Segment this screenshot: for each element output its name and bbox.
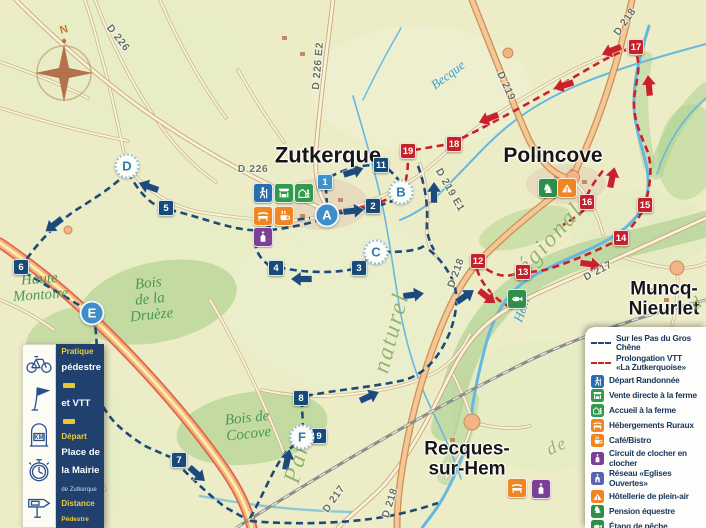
- hiker-icon: [591, 375, 604, 388]
- poi-fish-icon: [507, 289, 527, 309]
- waypoint-11: 11: [373, 157, 389, 173]
- fish-icon: [591, 520, 604, 528]
- poi-market-icon: [274, 183, 294, 203]
- legend-label: Pension équestre: [609, 507, 675, 516]
- yellow-badge: [63, 383, 75, 388]
- waypoint-17: 17: [628, 39, 644, 55]
- river-label-becque: Becque: [428, 57, 468, 93]
- info-value: et VTT: [61, 399, 90, 410]
- road-label-d-226-e2: D 226 E2: [310, 42, 326, 91]
- poi-tent-icon: [557, 178, 577, 198]
- legend-item-pension-equestre: ♞Pension équestre: [591, 505, 703, 518]
- road-label-d-219: D 219: [494, 70, 518, 103]
- svg-text:KM: KM: [35, 435, 44, 441]
- legend-label: Circuit de clocher en clocher: [609, 449, 703, 468]
- legend-item-accueil-a-la-ferme: Accueil à la ferme: [591, 404, 703, 417]
- legend-label: Départ Randonnée: [609, 376, 680, 385]
- legend-label: Hébergements Ruraux: [609, 421, 694, 430]
- letter-marker-f: F: [290, 425, 315, 450]
- church-icon: [591, 452, 604, 465]
- legend-label: Réseau «Eglises Ouvertes»: [609, 469, 703, 488]
- red-dash-swatch: [591, 362, 611, 364]
- waypoint-19: 19: [400, 143, 416, 159]
- letter-marker-e: E: [80, 301, 105, 326]
- legend-item-depart-randonnee: Départ Randonnée: [591, 374, 703, 387]
- poi-church-icon: [531, 479, 551, 499]
- cup-icon: [591, 434, 604, 447]
- road-label-d-218: D 218: [445, 257, 467, 290]
- place-label-bois-de-la-drueze: Boisde laDruèze: [126, 274, 174, 326]
- road-label-d-218: D 218: [380, 487, 401, 520]
- poi-cup-icon: [274, 206, 294, 226]
- watch-icon: [26, 456, 52, 484]
- waypoint-1: 1: [317, 174, 333, 190]
- waypoint-2: 2: [365, 198, 381, 214]
- info-value: la Mairie: [61, 466, 99, 477]
- legend-label: Accueil à la ferme: [609, 406, 676, 415]
- sign-icon: [25, 492, 53, 520]
- waypoint-15: 15: [637, 197, 653, 213]
- place-label-haute-montoire: HauteMontoire: [11, 270, 68, 305]
- legend-label: Hôtellerie de plein-air: [609, 492, 689, 501]
- flag-icon: [27, 384, 51, 412]
- waypoint-13: 13: [515, 264, 531, 280]
- road-label-d-217: D 217: [582, 259, 615, 284]
- letter-marker-c: C: [364, 240, 389, 265]
- yellow-badge: [63, 419, 75, 424]
- park-label-naturel: naturel: [368, 290, 415, 377]
- legend-item-circuit-de-clocher-en-clocher: Circuit de clocher en clocher: [591, 449, 703, 468]
- waypoint-7: 7: [171, 452, 187, 468]
- info-value: pédestre: [61, 363, 101, 374]
- waypoint-5: 5: [158, 200, 174, 216]
- waypoint-16: 16: [579, 194, 595, 210]
- info-panel: KM Pratiquepédestreet VTTDépartPlace del…: [22, 344, 104, 528]
- km-icon: KM: [27, 420, 51, 448]
- waypoint-8: 8: [293, 390, 309, 406]
- waypoint-4: 4: [268, 260, 284, 276]
- farm-icon: [591, 404, 604, 417]
- legend-label: Sur les Pas du Gros Chêne: [616, 334, 703, 353]
- poi-farm-icon: [294, 183, 314, 203]
- market-icon: [591, 389, 604, 402]
- compass-north-label: N: [59, 23, 70, 37]
- bike-icon: [25, 352, 53, 376]
- legend-item-etang-de-peche: Étang de pêche: [591, 520, 703, 528]
- tent-icon: [591, 490, 604, 503]
- road-label-d-218: D 218: [611, 6, 638, 38]
- info-row-header: Départ: [61, 433, 101, 442]
- poi-horse-icon: ♞: [538, 178, 558, 198]
- info-row-header: Distance: [61, 500, 101, 509]
- poi-bed-icon: [507, 478, 527, 498]
- info-panel-icons: KM: [22, 344, 56, 528]
- horse-icon: ♞: [591, 505, 604, 518]
- letter-marker-d: D: [115, 154, 140, 179]
- road-label-d-219-e1: D 219 E1: [433, 166, 467, 213]
- town-label-zutkerque: Zutkerque: [275, 145, 381, 168]
- info-value: Place de: [61, 448, 100, 459]
- legend-item-hotellerie-de-plein-air: Hôtellerie de plein-air: [591, 490, 703, 503]
- poi-bed-icon: [253, 206, 273, 226]
- legend-label: Prolongation VTT«La Zutkerquoise»: [616, 354, 686, 373]
- legend-label: Étang de pêche: [609, 522, 668, 528]
- info-row-pratique: Pratiquepédestreet VTT: [61, 348, 101, 429]
- place-label-bois-de-cocove: Bois deCocove: [224, 409, 272, 445]
- legend-label: Café/Bistro: [609, 436, 651, 445]
- info-row-distance: DistancePédestre14,5 kmVTT21 km: [61, 500, 101, 528]
- waypoint-18: 18: [446, 136, 462, 152]
- legend-item-hebergements-ruraux: Hébergements Ruraux: [591, 419, 703, 432]
- poi-hiker-icon: [253, 183, 273, 203]
- legend-item-reseau-eglises-ouvertes: Réseau «Eglises Ouvertes»: [591, 469, 703, 488]
- road-label-d-226: D 226: [104, 22, 132, 53]
- info-row-header: Pratique: [61, 348, 101, 357]
- legend-label: Vente directe à la ferme: [609, 391, 697, 400]
- info-panel-rows: Pratiquepédestreet VTTDépartPlace dela M…: [56, 344, 104, 528]
- road-label-d-217: D 217: [320, 483, 347, 515]
- waypoint-6: 6: [13, 259, 29, 275]
- letter-marker-b: B: [389, 180, 414, 205]
- blue-dash-swatch: [591, 342, 611, 344]
- waypoint-12: 12: [470, 253, 486, 269]
- bed-icon: [591, 419, 604, 432]
- park-label-de: de: [543, 432, 571, 460]
- info-value: de Zutkerque: [61, 487, 96, 493]
- town-label-recques: Recques-sur-Hem: [424, 439, 510, 479]
- info-row-depart: DépartPlace dela Mairiede Zutkerque: [61, 433, 101, 496]
- poi-church-icon: [253, 227, 273, 247]
- trail-map: N ZutkerquePolincoveMuncq-NieurletRecque…: [0, 0, 706, 528]
- town-label-polincove: Polincove: [503, 145, 602, 167]
- legend-item-sur-les-pas-du-gros-chene: Sur les Pas du Gros Chêne: [591, 334, 703, 353]
- waypoint-3: 3: [351, 260, 367, 276]
- legend-item-vente-directe-a-la-ferme: Vente directe à la ferme: [591, 389, 703, 402]
- info-value: Pédestre: [61, 516, 88, 523]
- map-legend: Sur les Pas du Gros ChêneProlongation VT…: [585, 327, 706, 528]
- letter-marker-a: A: [315, 203, 340, 228]
- road-label-d-226: D 226: [238, 163, 269, 175]
- legend-item-prolongation-vtt: Prolongation VTT«La Zutkerquoise»: [591, 354, 703, 373]
- open-church-icon: [591, 472, 604, 485]
- legend-item-cafe-bistro: Café/Bistro: [591, 434, 703, 447]
- waypoint-14: 14: [613, 230, 629, 246]
